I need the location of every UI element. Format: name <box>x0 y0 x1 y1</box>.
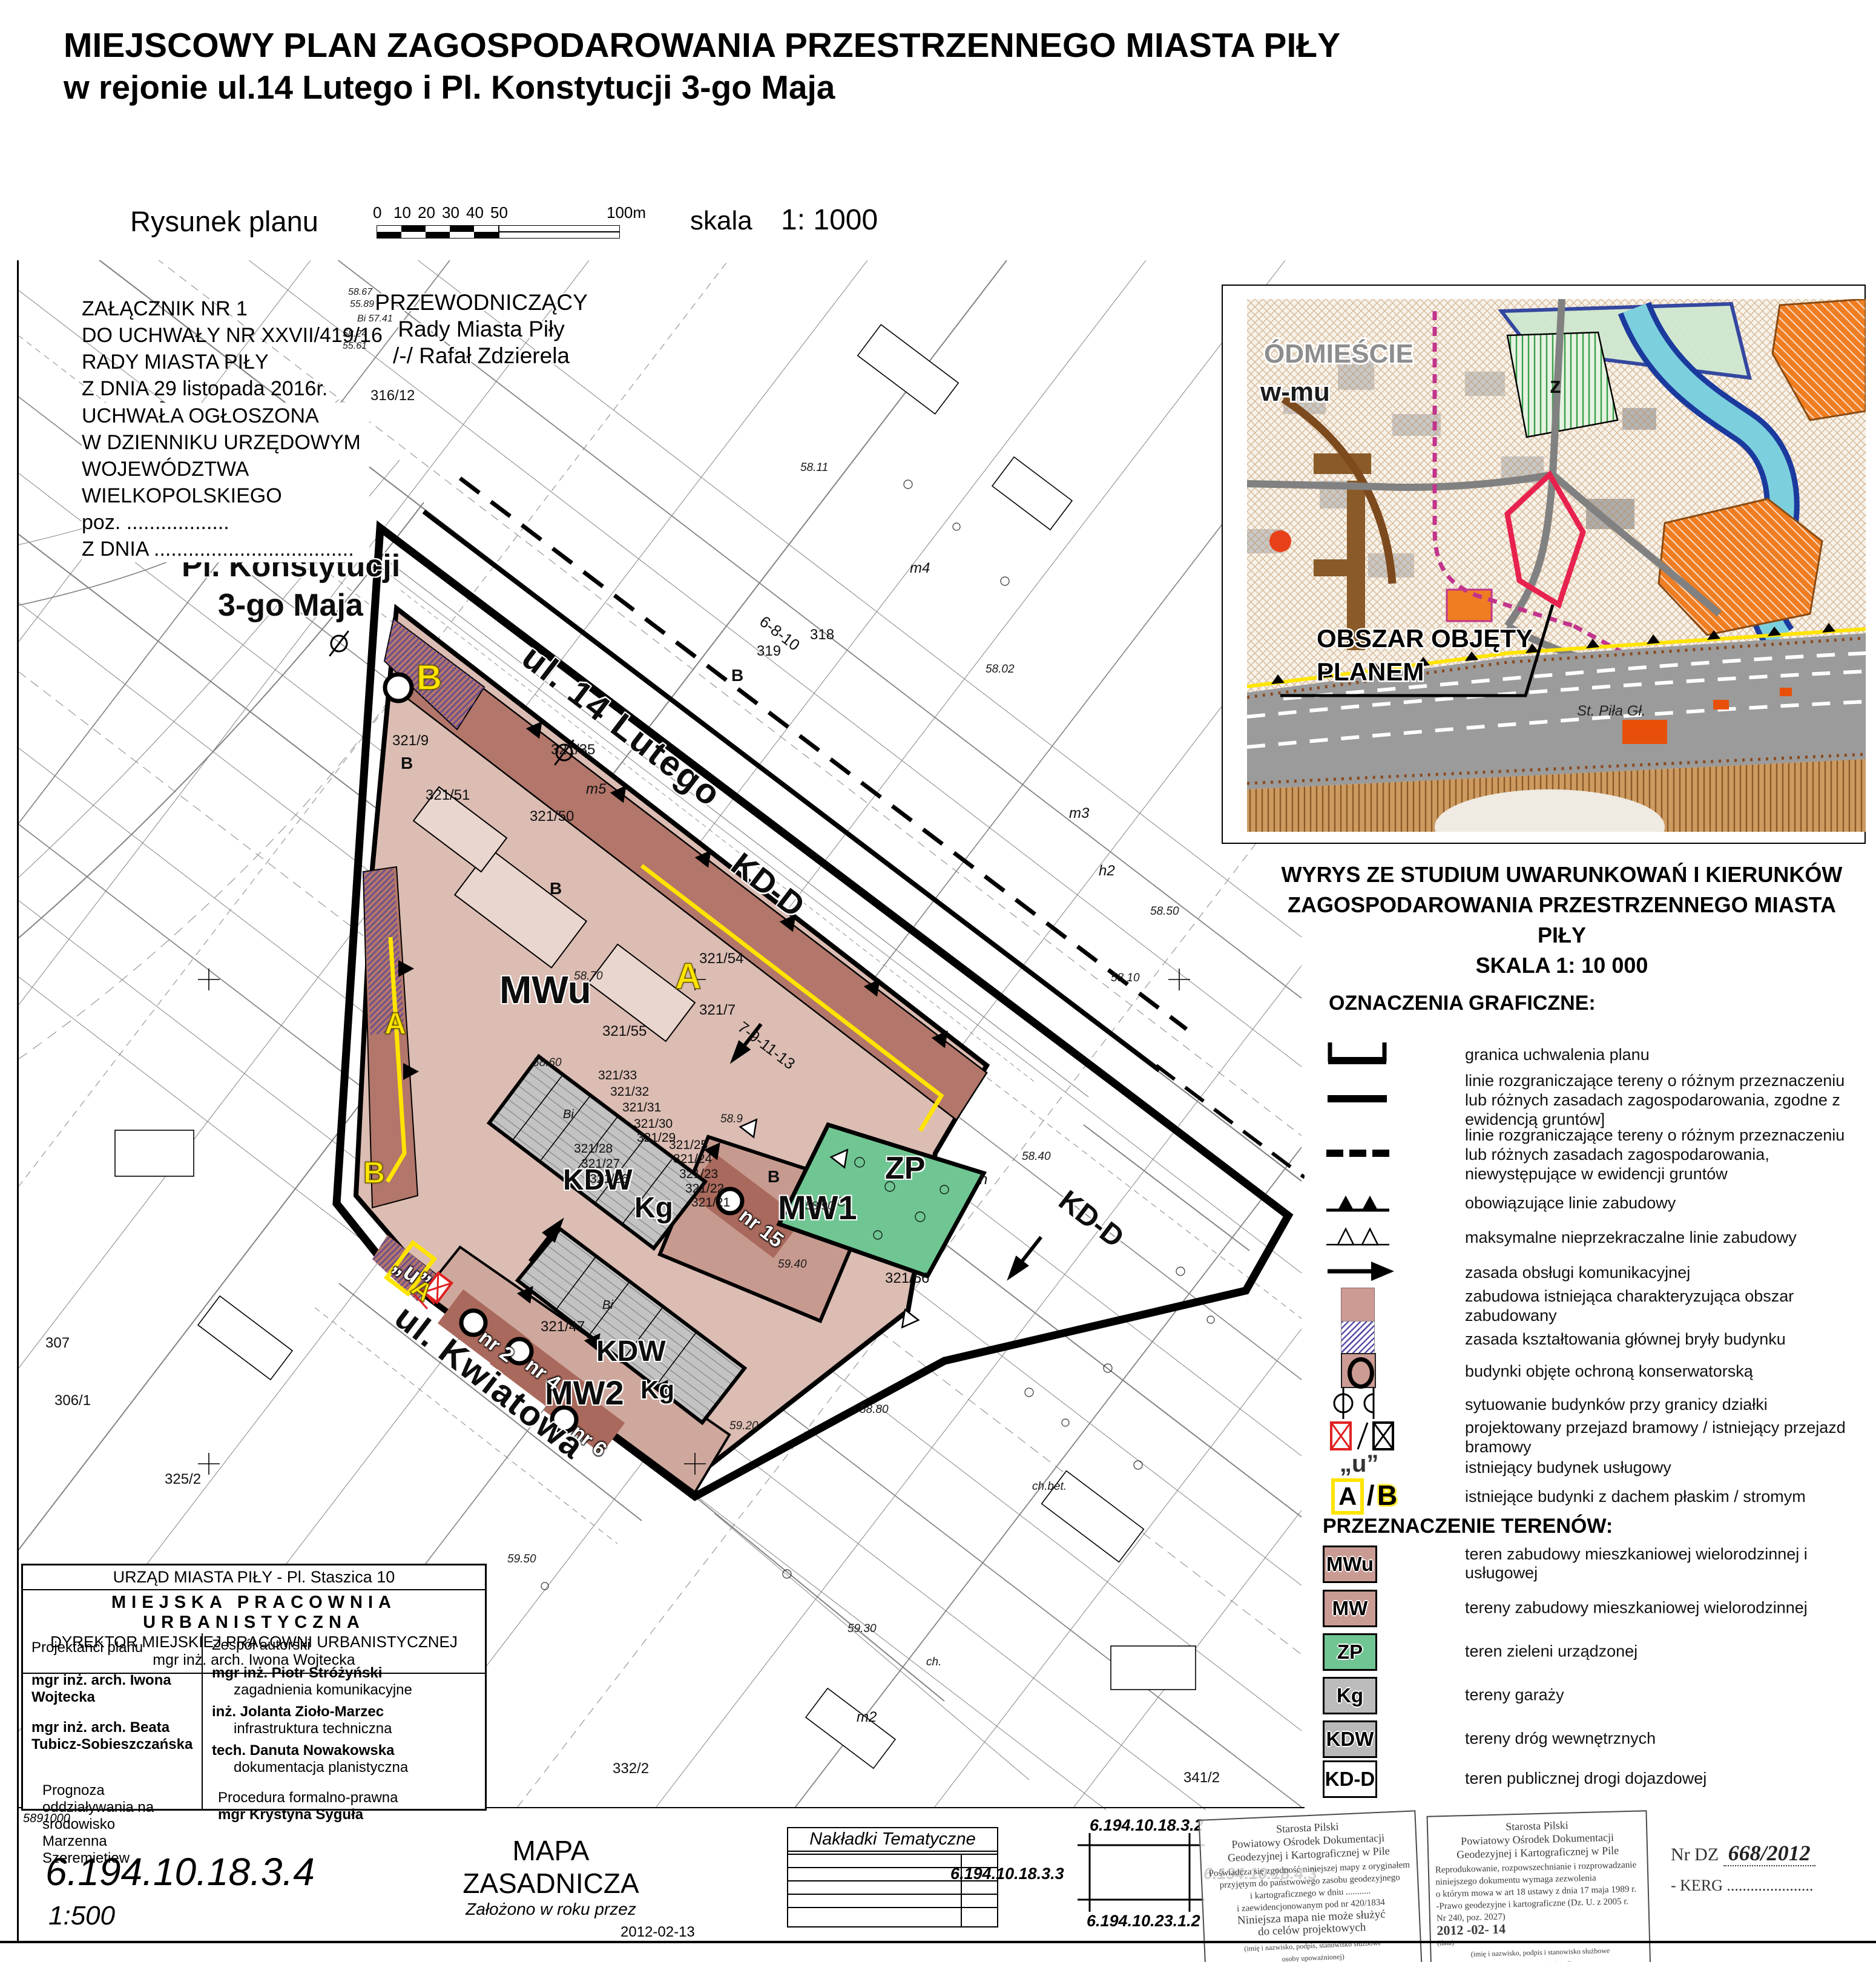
credits-office: URZĄD MIASTA PIŁY - Pl. Staszica 10 <box>23 1565 485 1590</box>
landuse-swatch-mw: MW <box>1323 1590 1377 1627</box>
drawing-label: Rysunek planu <box>130 205 318 238</box>
landuse-item-kg: Kg tereny garaży <box>1323 1677 1868 1713</box>
annex-line: RADY MIASTA PIŁY <box>82 349 383 375</box>
landuse-swatch-kdd: KD-D <box>1323 1760 1377 1798</box>
landuse-item-kdd: KD-D teren publicznej drogi dojazdowej <box>1323 1760 1868 1797</box>
nr-dz-block: Nr DZ 668/2012 - KERG ..................… <box>1671 1840 1815 1895</box>
author-2: inż. Jolanta Zioło-Marzec <box>212 1704 478 1720</box>
scale-word: skala <box>690 206 752 236</box>
procedure-name: mgr Krystyna Syguła <box>218 1806 478 1823</box>
inset-z-label: z <box>1550 373 1561 398</box>
annex-line: DO UCHWAŁY NR XXVII/419/16 <box>82 322 383 349</box>
plan-document: MIEJSCOWY PLAN ZAGOSPODAROWANIA PRZESTRZ… <box>0 0 1876 1962</box>
page-title-line2: w rejonie ul.14 Lutego i Pl. Konstytucji… <box>64 68 835 107</box>
inset-station-label: St. Piła Gł. <box>1577 703 1645 719</box>
sheet-index-bottom: 6.194.10.23.1.2 <box>1087 1912 1200 1931</box>
overlays-title: Nakładki Tematyczne <box>788 1828 997 1852</box>
landuse-swatch-zp: ZP <box>1323 1633 1377 1671</box>
base-map-block: MAPA ZASADNICZA Założono w roku przez <box>424 1834 678 1919</box>
inset-caption-line: SKALA 1: 10 000 <box>1262 950 1861 981</box>
roof-type-icon: A / B <box>1331 1478 1397 1515</box>
credits-team: Zespół autorski mgr inż. Piotr Stróżyńsk… <box>212 1637 478 1823</box>
inset-studium-map: ÓDMIEŚCIE w-mu z OBSZAR OBJĘTY PLANEM St… <box>1247 299 1866 832</box>
annex-line: Z DNIA 29 listopada 2016r. <box>82 375 383 402</box>
inset-caption-line: ZAGOSPODAROWANIA PRZESTRZENNEGO MIASTA P… <box>1262 890 1861 950</box>
inset-district-sub: w-mu <box>1260 377 1330 407</box>
stamp-reproduction: Starosta Pilski Powiatowy Ośrodek Dokume… <box>1427 1810 1651 1962</box>
dashed-line-icon <box>1323 1135 1401 1171</box>
base-map-sub: Założono w roku przez <box>424 1900 678 1919</box>
designers-title: Projektanci planu <box>31 1639 198 1656</box>
footer-coordinate: 5891000 <box>23 1812 70 1826</box>
solid-line-icon <box>1323 1081 1401 1117</box>
publication-line: Z DNIA .................................… <box>82 536 361 562</box>
kerg-label: - KERG ...................... <box>1671 1877 1815 1895</box>
procedure-title: Procedura formalno-prawna <box>218 1789 478 1806</box>
scalebar-end: 100m <box>607 203 646 222</box>
credits-box: URZĄD MIASTA PIŁY - Pl. Staszica 10 MIEJ… <box>21 1564 487 1811</box>
publication-line: WIELKOPOLSKIEGO <box>82 482 361 509</box>
landuse-item-kdw: KDW tereny dróg wewnętrznych <box>1323 1720 1868 1757</box>
pink-area-icon <box>1341 1288 1375 1322</box>
inset-orange-small <box>1447 590 1492 621</box>
inset-area-label-1: OBSZAR OBJĘTY <box>1317 624 1533 653</box>
publication-line: WOJEWÓDZTWA <box>82 456 361 482</box>
sheet-index-top: 6.194.10.18.3.2 <box>1090 1816 1203 1835</box>
publication-line: W DZIENNIKU URZĘDOWYM <box>82 429 361 456</box>
legend-item-obowiazujace: obowiązujące linie zabudowy <box>1323 1183 1868 1222</box>
inset-red-dot <box>1269 530 1291 552</box>
annex-block: ZAŁĄCZNIK NR 1 DO UCHWAŁY NR XXVII/419/1… <box>82 295 383 402</box>
footer-sheet-id: 6.194.10.18.3.4 <box>45 1849 315 1894</box>
publication-line: poz. .................. <box>82 509 361 536</box>
credits-designers: Projektanci planu mgr inż. arch. Iwona W… <box>31 1639 198 1867</box>
blue-hatch-icon <box>1341 1321 1375 1355</box>
landuse-item-zp: ZP teren zieleni urządzonej <box>1323 1633 1868 1670</box>
landuse-swatch-mwu: MWu <box>1323 1546 1377 1583</box>
author-2-role: infrastruktura techniczna <box>234 1720 478 1737</box>
publication-line: UCHWAŁA OGŁOSZONA <box>82 403 361 429</box>
page-title-line1: MIEJSCOWY PLAN ZAGOSPODAROWANIA PRZESTRZ… <box>64 25 1340 65</box>
legend-title: OZNACZENIA GRAFICZNE: <box>1329 992 1596 1015</box>
scale-bar: 0 10 20 30 40 50 100m <box>377 203 643 242</box>
open-triangles-line-icon <box>1323 1218 1401 1254</box>
legend-item-linie-niewystepujace: linie rozgraniczające tereny o różnym pr… <box>1323 1135 1868 1174</box>
arrow-icon <box>1323 1253 1401 1289</box>
page-frame-bottom <box>0 1941 1876 1943</box>
prognosis-1: Prognoza <box>42 1782 198 1799</box>
chairman-block: PRZEWODNICZĄCY Rady Miasta Piły /-/ Rafa… <box>372 289 590 369</box>
designer-1: mgr inż. arch. Iwona Wojtecka <box>31 1672 198 1706</box>
scalebar-tick: 0 <box>373 203 381 222</box>
inset-caption: WYRYS ZE STUDIUM UWARUNKOWAŃ I KIERUNKÓW… <box>1262 860 1861 981</box>
credits-divider <box>202 1633 203 1809</box>
scalebar-tick: 50 <box>490 203 508 222</box>
footer-date: 2012-02-13 <box>620 1924 695 1941</box>
granica-symbol-icon <box>1323 1035 1401 1072</box>
chairman-line: PRZEWODNICZĄCY <box>372 289 590 316</box>
inset-area-label-2: PLANEM <box>1317 657 1424 686</box>
legend-item-linie-zgodne: linie rozgraniczające tereny o różnym pr… <box>1323 1081 1868 1119</box>
publication-block: UCHWAŁA OGŁOSZONA W DZIENNIKU URZĘDOWYM … <box>82 403 369 562</box>
service-building-icon: „u” <box>1340 1450 1378 1478</box>
scalebar-tick: 10 <box>393 203 411 222</box>
base-map-title: MAPA ZASADNICZA <box>424 1834 678 1900</box>
page-frame-left <box>17 260 19 1942</box>
author-1-role: zagadnienia komunikacyjne <box>234 1682 478 1699</box>
designer-2: mgr inż. arch. Beata Tubicz-Sobieszczańs… <box>31 1719 198 1753</box>
chairman-line: /-/ Rafał Zdzierela <box>372 343 590 369</box>
conservation-icon <box>1341 1353 1376 1388</box>
landuse-item-mw: MW tereny zabudowy mieszkaniowej wieloro… <box>1323 1590 1868 1626</box>
scalebar-tick: 30 <box>442 203 459 222</box>
scalebar-graphic <box>377 225 620 239</box>
author-3: tech. Danuta Nowakowska <box>212 1742 478 1759</box>
legend-item-granica: granica uchwalenia planu <box>1323 1035 1868 1074</box>
landuse-swatch-kg: Kg <box>1323 1677 1377 1714</box>
sheet-index-left: 6.194.10.18.3.3 <box>950 1865 1064 1883</box>
boundary-siting-icon <box>1323 1385 1401 1421</box>
credits-studio: MIEJSKA PRACOWNIA URBANISTYCZNA <box>23 1593 485 1633</box>
footer-sheet-scale: 1:500 <box>48 1901 115 1931</box>
scale-value: 1: 1000 <box>781 203 878 237</box>
spur-edge-dashed <box>1156 1065 1305 1177</box>
landuse-item-mwu: MWu teren zabudowy mieszkaniowej wieloro… <box>1323 1546 1868 1582</box>
author-3-role: dokumentacja planistyczna <box>234 1759 478 1776</box>
legend-item-dachy: A / B istniejące budynki z dachem płaski… <box>1323 1477 1868 1516</box>
landuse-title: PRZEZNACZENIE TERENÓW: <box>1323 1515 1613 1538</box>
nr-dz-label: Nr DZ <box>1671 1845 1719 1865</box>
legend-item-maksymalne: maksymalne nieprzekraczalne linie zabudo… <box>1323 1218 1868 1257</box>
inset-district-label: ÓDMIEŚCIE <box>1264 338 1414 369</box>
scalebar-tick: 40 <box>466 203 484 222</box>
landuse-swatch-kdw: KDW <box>1323 1720 1377 1758</box>
chairman-line: Rady Miasta Piły <box>372 316 590 343</box>
filled-triangles-line-icon <box>1323 1183 1401 1220</box>
inset-caption-line: WYRYS ZE STUDIUM UWARUNKOWAŃ I KIERUNKÓW <box>1262 860 1861 890</box>
nr-dz-value: 668/2012 <box>1723 1841 1815 1866</box>
stamp-certification: Starosta Pilski Powiatowy Ośrodek Dokume… <box>1199 1810 1423 1962</box>
author-1: mgr inż. Piotr Stróżyński <box>212 1665 478 1682</box>
annex-line: ZAŁĄCZNIK NR 1 <box>82 295 383 322</box>
scalebar-tick: 20 <box>418 203 435 222</box>
team-title: Zespół autorski <box>212 1637 478 1654</box>
